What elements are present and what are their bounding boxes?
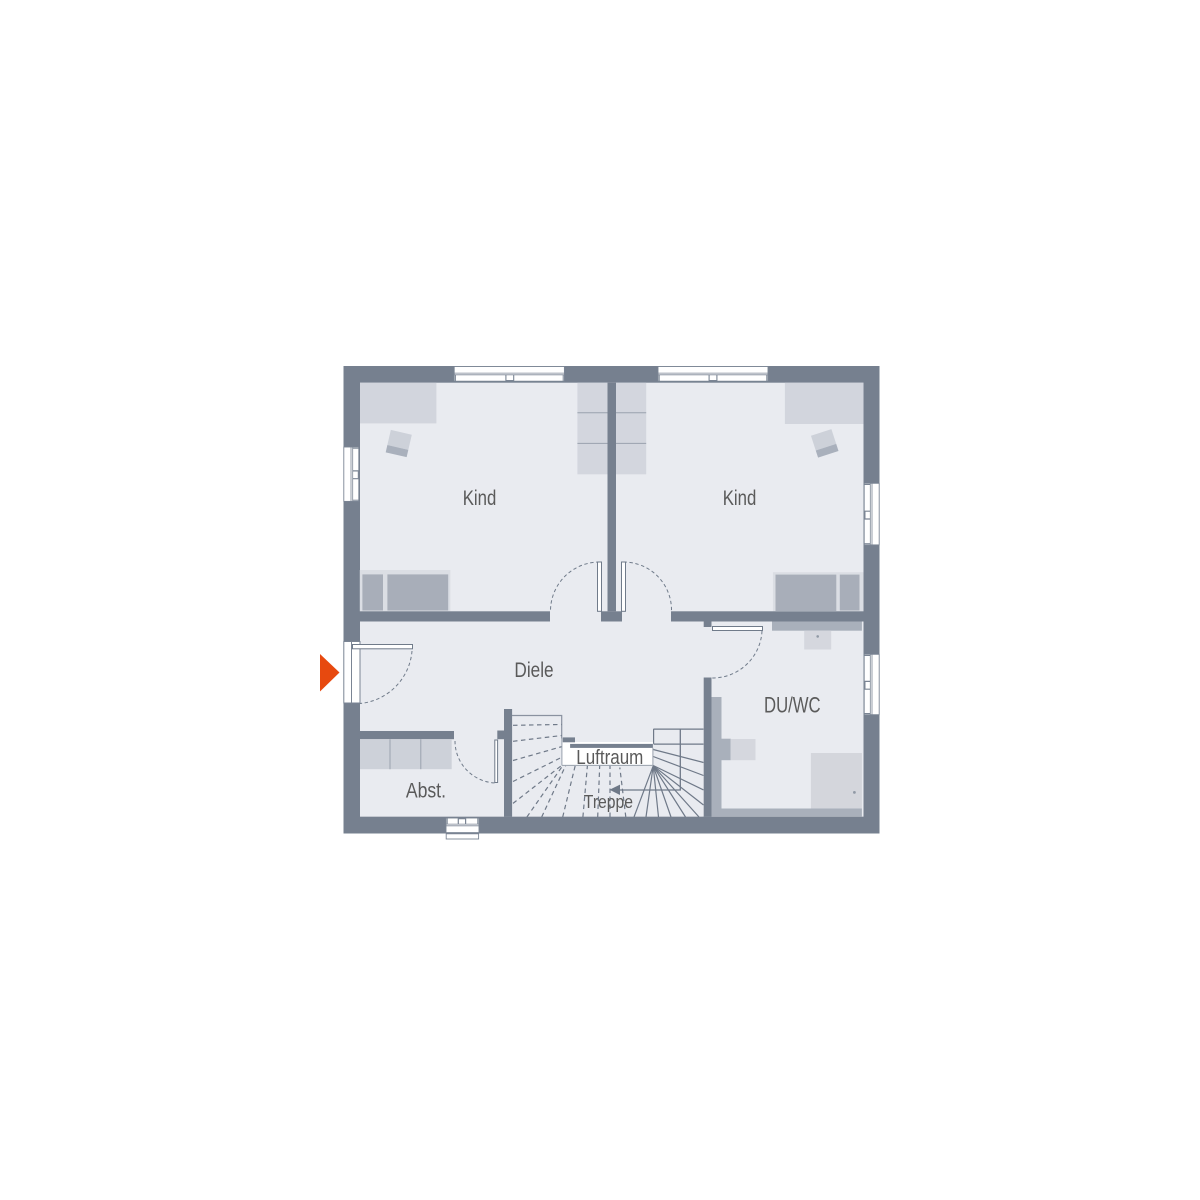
svg-text:Diele: Diele bbox=[514, 660, 553, 683]
svg-text:Kind: Kind bbox=[463, 487, 497, 510]
svg-text:Luftraum: Luftraum bbox=[576, 746, 643, 769]
svg-text:Abst.: Abst. bbox=[406, 779, 446, 803]
svg-text:Treppe: Treppe bbox=[584, 791, 633, 813]
svg-text:DU/WC: DU/WC bbox=[764, 694, 821, 719]
svg-text:Kind: Kind bbox=[723, 487, 757, 510]
